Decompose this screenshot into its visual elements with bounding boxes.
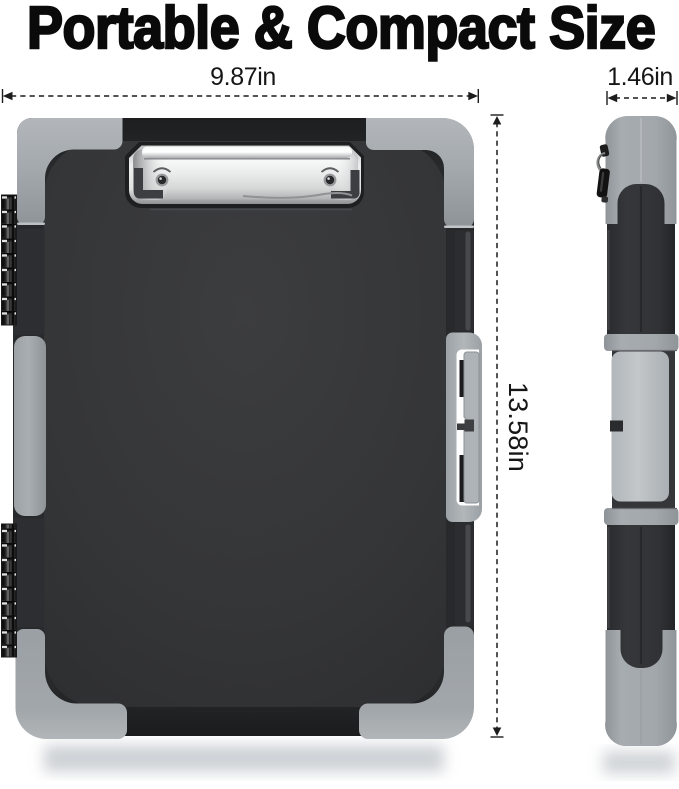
svg-text:13.58in: 13.58in (503, 382, 533, 472)
svg-text:9.87in: 9.87in (210, 63, 276, 91)
svg-text:1.46in: 1.46in (607, 63, 673, 91)
svg-text:Portable & Compact Size: Portable & Compact Size (27, 0, 655, 61)
